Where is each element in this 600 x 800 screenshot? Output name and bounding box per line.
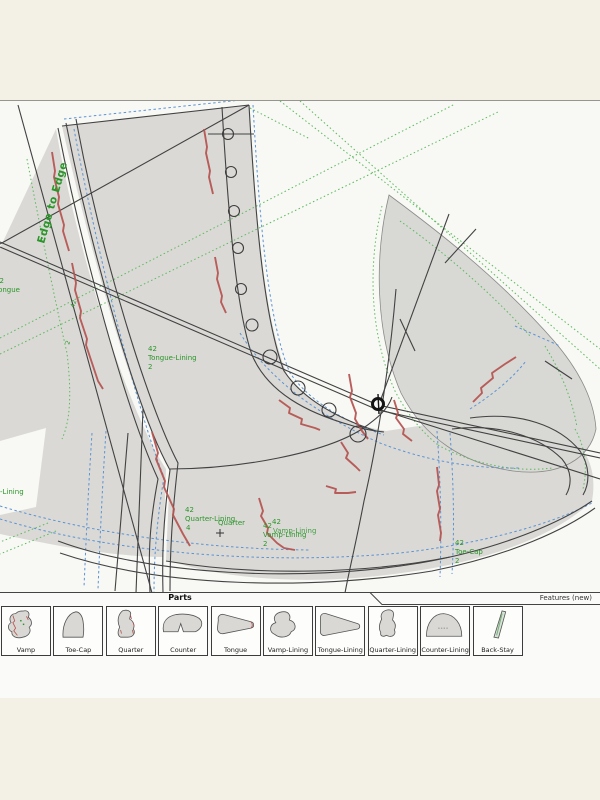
vamp-thumbnail-shape bbox=[2, 608, 50, 641]
part-thumb-label: Tongue bbox=[212, 646, 260, 654]
vamp-lining-label-name2: Vamp-Lining bbox=[273, 527, 316, 535]
vamp-lining-label-num: 42 bbox=[263, 522, 272, 530]
features-tab-label[interactable]: Features (new) bbox=[540, 594, 592, 602]
quarter-ref-label: Quarter bbox=[218, 519, 245, 527]
part-thumb-label: Toe-Cap bbox=[54, 646, 102, 654]
part-thumb-label: Quarter bbox=[107, 646, 155, 654]
part-thumb-toe_cap[interactable]: Toe-Cap bbox=[53, 606, 103, 656]
tongue-label-name: Tongue bbox=[0, 286, 20, 294]
part-thumb-label: Vamp-Lining bbox=[264, 646, 312, 654]
part-thumb-label: Vamp bbox=[2, 646, 50, 654]
part-thumb-counter[interactable]: Counter bbox=[158, 606, 208, 656]
part-thumb-quarter_lining[interactable]: Quarter-Lining bbox=[368, 606, 418, 656]
tongue-lining-label-qty: 2 bbox=[148, 363, 152, 371]
screenshot-root: Edge to Edge 42 Tongue 2 42 Tongue-Linin… bbox=[0, 0, 600, 800]
quarter-lining-label-num: 42 bbox=[185, 506, 194, 514]
vamp-lining-label-qty: 2 bbox=[263, 540, 267, 548]
quarter-lining-label-qty: 4 bbox=[186, 524, 191, 532]
part-thumb-tongue_lining[interactable]: Tongue-Lining bbox=[315, 606, 365, 656]
part-thumb-tongue[interactable]: Tongue bbox=[211, 606, 261, 656]
counter-thumbnail-shape bbox=[159, 608, 207, 641]
part-thumb-label: Quarter-Lining bbox=[369, 646, 417, 654]
part-thumb-vamp_lining[interactable]: Vamp-Lining bbox=[263, 606, 313, 656]
part-thumb-quarter[interactable]: Quarter bbox=[106, 606, 156, 656]
lining-partial-label: -Lining bbox=[0, 488, 24, 496]
part-thumb-label: Tongue-Lining bbox=[316, 646, 364, 654]
parts-toolbar: Parts Features (new) bbox=[0, 592, 600, 606]
part-thumb-label: Counter bbox=[159, 646, 207, 654]
part-thumb-back_stay[interactable]: Back-Stay bbox=[473, 606, 523, 656]
tongue-lining-label-num: 42 bbox=[148, 345, 157, 353]
quarter_lining-thumbnail-shape bbox=[369, 608, 417, 641]
part-thumb-label: Back-Stay bbox=[474, 646, 522, 654]
pattern-canvas[interactable]: Edge to Edge 42 Tongue 2 42 Tongue-Linin… bbox=[0, 101, 600, 593]
vamp_lining-thumbnail-shape bbox=[264, 608, 312, 641]
tongue-lining-label-name: Tongue-Lining bbox=[147, 354, 197, 362]
tongue-label-num: 42 bbox=[0, 277, 4, 285]
back_stay-thumbnail-shape bbox=[474, 608, 522, 641]
part-thumb-vamp[interactable]: Vamp bbox=[1, 606, 51, 656]
part-thumb-label: Counter-Lining bbox=[421, 646, 469, 654]
toe-cap-label-qty: 2 bbox=[455, 557, 459, 565]
toe-cap-label-name: Toe-Cap bbox=[454, 548, 483, 556]
tongue_lining-thumbnail-shape bbox=[316, 608, 364, 641]
toe_cap-thumbnail-shape bbox=[54, 608, 102, 641]
tongue-thumbnail-shape bbox=[212, 608, 260, 641]
parts-tray: VampToe-Cap QuarterCounter TongueVamp-Li… bbox=[1, 606, 525, 656]
quarter-thumbnail-shape bbox=[107, 608, 155, 641]
counter_lining-thumbnail-shape bbox=[421, 608, 469, 641]
pattern-editor-window: Edge to Edge 42 Tongue 2 42 Tongue-Linin… bbox=[0, 100, 600, 698]
parts-tab-label[interactable]: Parts bbox=[150, 593, 210, 602]
toe-cap-label-num: 42 bbox=[455, 539, 464, 547]
part-thumb-counter_lining[interactable]: Counter-Lining bbox=[420, 606, 470, 656]
vamp-lining-label-num2: 42 bbox=[272, 518, 281, 526]
toolbar-tab-outline bbox=[0, 592, 600, 606]
